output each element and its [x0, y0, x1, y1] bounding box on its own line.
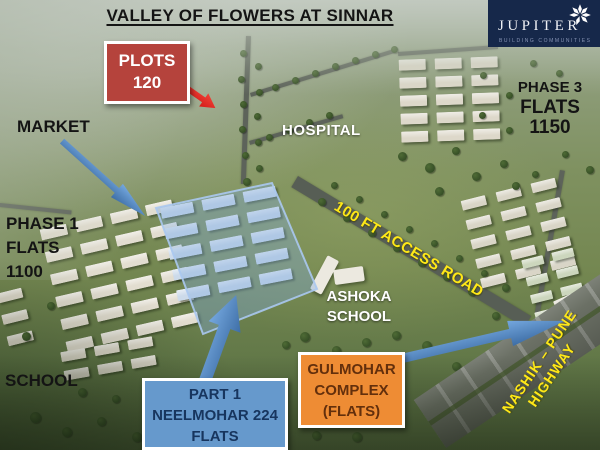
part1-neelmohar-callout: PART 1 NEELMOHAR 224 FLATS [142, 378, 288, 450]
plots-callout: PLOTS 120 [104, 41, 190, 104]
part1-line2: NEELMOHAR [152, 407, 249, 424]
gulmohar-line3: (FLATS) [323, 403, 380, 420]
ashoka-school-label: ASHOKA SCHOOL [316, 287, 402, 327]
jupiter-logo-tagline: BUILDING COMMUNITIES [499, 38, 592, 44]
gulmohar-complex-callout: GULMOHAR COMPLEX (FLATS) [298, 352, 405, 428]
gulmohar-line2: COMPLEX [314, 382, 388, 399]
school-label: SCHOOL [5, 371, 78, 391]
map-title: VALLEY OF FLOWERS AT SINNAR [90, 6, 410, 26]
ashoka-line2: SCHOOL [316, 307, 402, 327]
gulmohar-line1: GULMOHAR [307, 361, 395, 378]
phase3-line1: PHASE 3 [502, 78, 598, 98]
phase3-label: PHASE 3 FLATS 1150 [502, 78, 598, 138]
phase3-line2: FLATS [502, 98, 598, 118]
site-map: VALLEY OF FLOWERS AT SINNAR JUPITER BUIL… [0, 0, 600, 450]
ashoka-line1: ASHOKA [316, 287, 402, 307]
market-label: MARKET [17, 117, 90, 137]
phase1-label: PHASE 1 FLATS 1100 [6, 212, 79, 284]
plots-line1: PLOTS [119, 51, 176, 70]
phase1-line3: 1100 [6, 260, 79, 284]
jupiter-logo-text: JUPITER [498, 18, 581, 35]
jupiter-logo: JUPITER BUILDING COMMUNITIES [488, 0, 600, 47]
phase1-line1: PHASE 1 [6, 212, 79, 236]
phase1-line2: FLATS [6, 236, 79, 260]
phase3-line3: 1150 [502, 118, 598, 138]
part1-line1: PART 1 [189, 386, 241, 403]
plots-line2: 120 [133, 73, 161, 92]
hospital-label: HOSPITAL [282, 122, 361, 139]
